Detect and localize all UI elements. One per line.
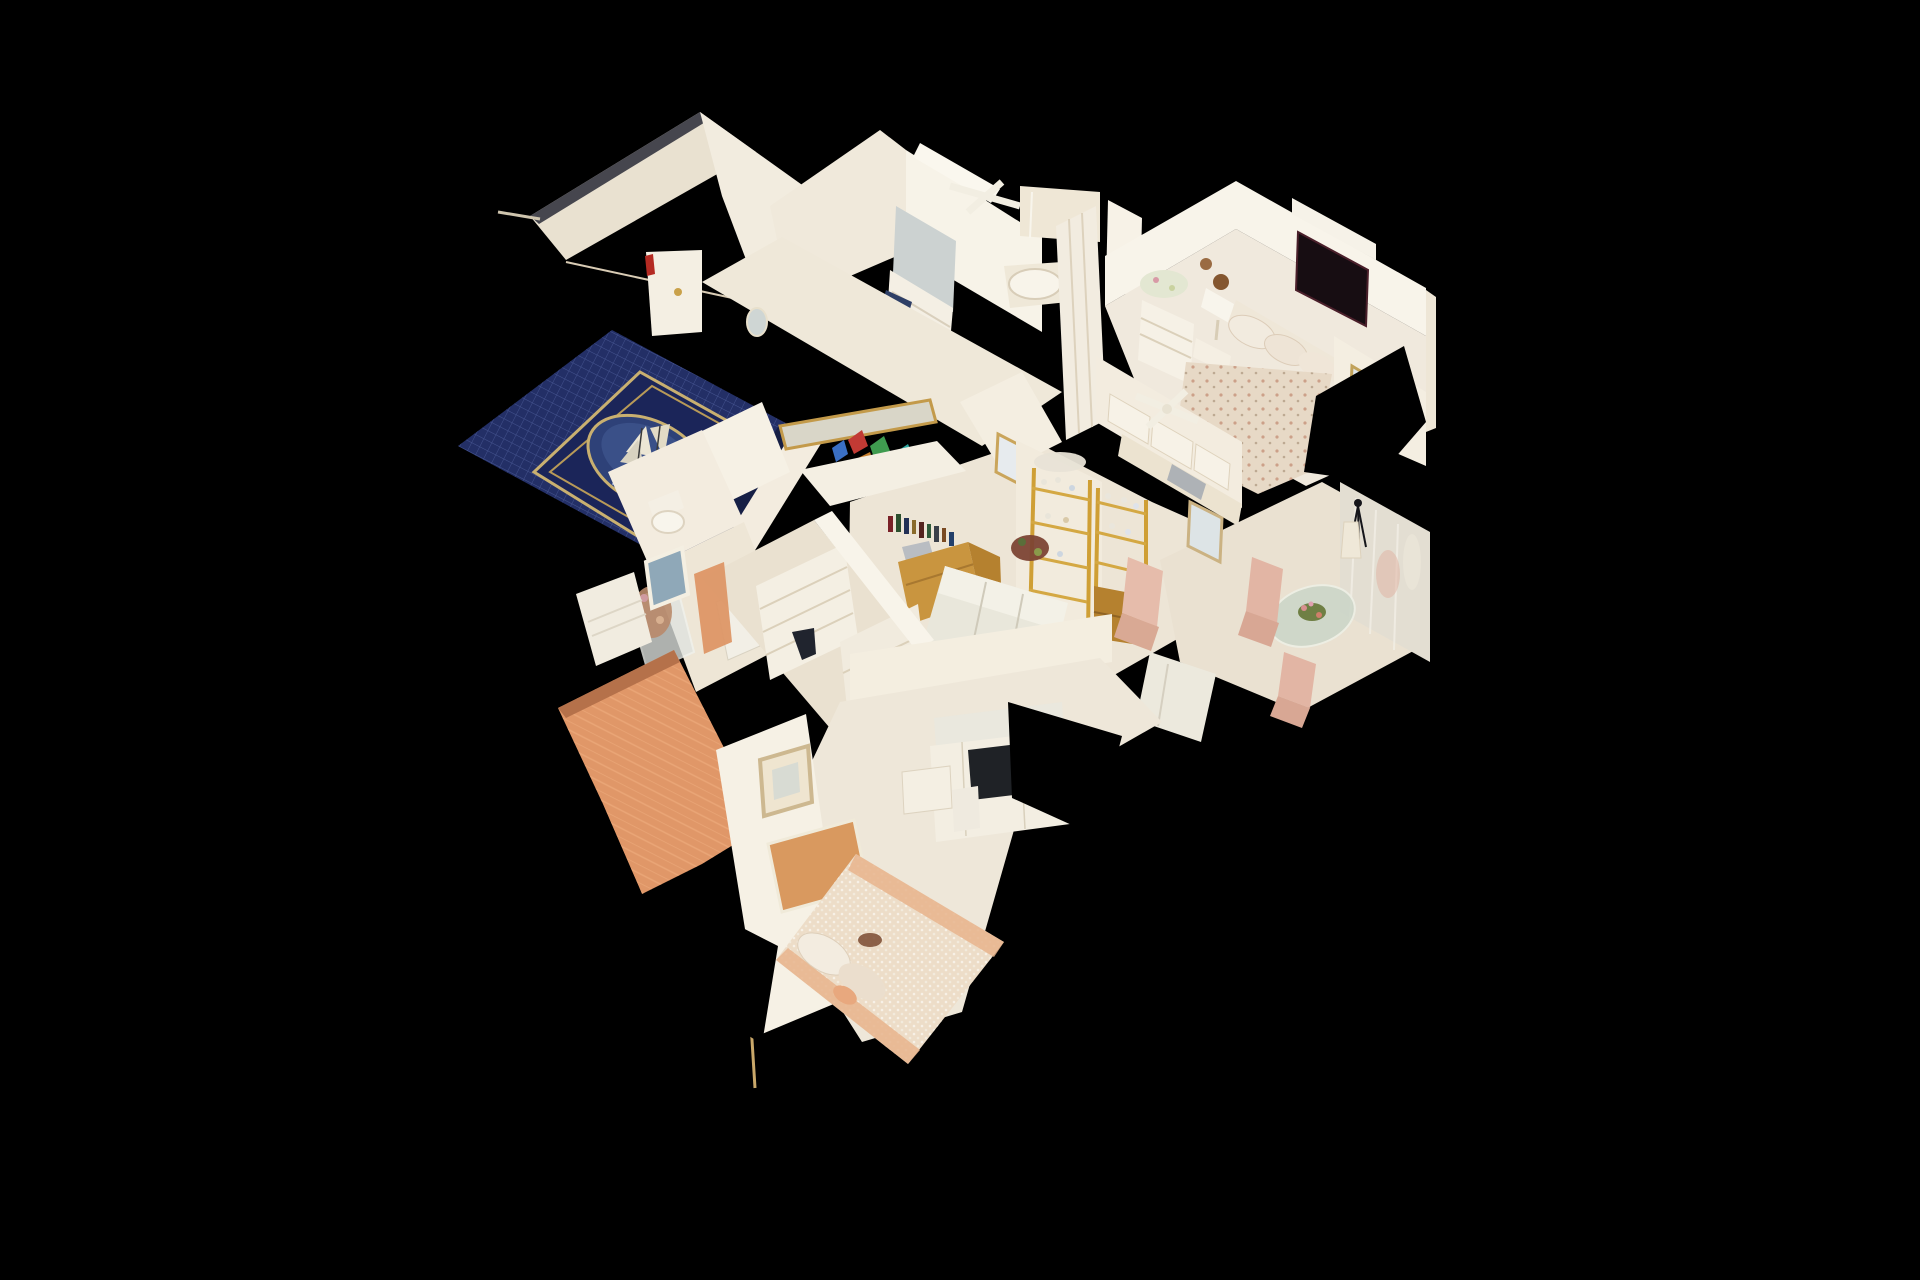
scene-root xyxy=(458,112,1436,1088)
dried-flower-bloom xyxy=(656,616,664,624)
tall-vase xyxy=(1341,522,1361,558)
figurine xyxy=(1121,497,1127,503)
figurine xyxy=(1041,479,1047,485)
chest-flowers xyxy=(1140,270,1188,298)
ceiling-fan-hub xyxy=(1162,404,1172,414)
toilet-bowl xyxy=(652,511,684,533)
figurine xyxy=(1055,477,1061,483)
bar-bottle xyxy=(888,516,893,532)
figurine xyxy=(1063,517,1069,523)
plant-leaf xyxy=(1018,538,1026,546)
figurine xyxy=(1109,523,1115,529)
dresser-gold-pull xyxy=(674,288,682,296)
figurine xyxy=(1105,493,1111,499)
centerpiece-bloom xyxy=(1301,605,1307,611)
plant-leaf xyxy=(1034,548,1042,556)
glass-art xyxy=(832,440,848,462)
wicker-hamper xyxy=(952,786,980,832)
bar-bottle xyxy=(942,528,946,542)
figurine xyxy=(1133,503,1139,509)
figurine xyxy=(1125,529,1131,535)
bar-bottle xyxy=(934,526,939,542)
bar-bottle xyxy=(904,518,909,534)
bar-bottle xyxy=(896,514,901,532)
oval-wall-mirror xyxy=(747,308,767,336)
mirror-reflection-smudge xyxy=(1403,534,1421,590)
floor-plant xyxy=(1011,535,1049,561)
figurine xyxy=(1057,551,1063,557)
nightstand xyxy=(902,766,952,814)
centerpiece-bloom xyxy=(1309,602,1314,607)
figurine-cluster xyxy=(1034,452,1086,472)
bed1-brown-accent xyxy=(858,933,882,947)
flower-dot xyxy=(1169,285,1175,291)
wall-plate-decor xyxy=(1213,274,1229,290)
wall-plate-decor xyxy=(1200,258,1212,270)
garden-tub xyxy=(1009,269,1061,299)
dollhouse-viewport[interactable] xyxy=(0,0,1920,1280)
figurine xyxy=(1069,485,1075,491)
figurine xyxy=(1045,513,1051,519)
white-chaise xyxy=(576,572,652,666)
model-right-edge-wall xyxy=(1426,290,1436,432)
dollhouse-3d-model[interactable] xyxy=(0,0,1920,1280)
bar-bottle xyxy=(949,532,954,546)
bar-bottle xyxy=(927,524,931,538)
bar-bottle xyxy=(912,520,916,534)
scan-tripod-head xyxy=(1354,499,1362,507)
etagere-post xyxy=(1088,480,1090,636)
mirror-reflection-smudge xyxy=(1376,550,1400,598)
bar-bottle xyxy=(919,522,924,538)
flower-dot xyxy=(1153,277,1159,283)
white-dresser xyxy=(646,250,702,336)
table-lamp-stem xyxy=(1216,320,1218,340)
centerpiece-bloom xyxy=(1316,612,1322,618)
